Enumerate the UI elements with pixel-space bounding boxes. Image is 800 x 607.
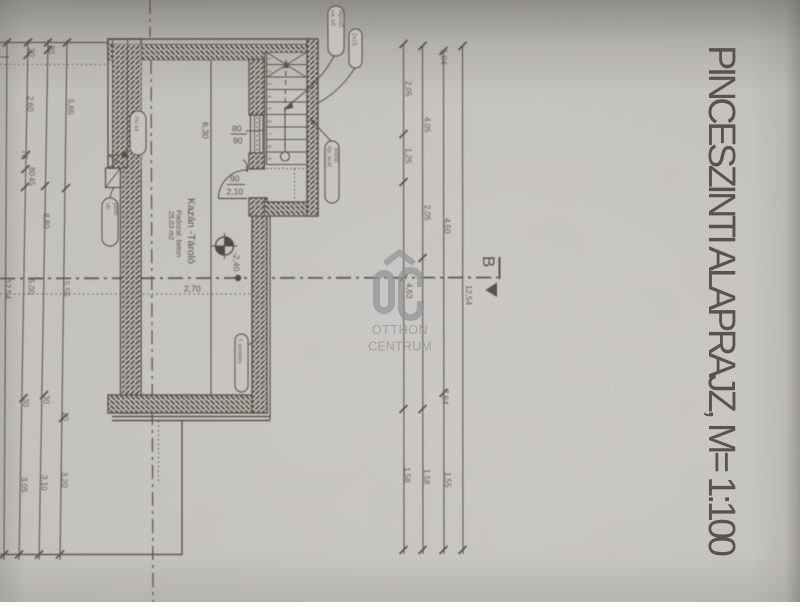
svg-text:2x15: 2x15 [351,33,357,47]
svg-text:CENTRUM: CENTRUM [368,340,432,354]
svg-text:8,80: 8,80 [42,213,51,229]
svg-text:1,58: 1,58 [403,467,412,483]
svg-text:20: 20 [61,412,70,421]
svg-text:PH 94: PH 94 [133,116,139,131]
svg-text:3: 3 [266,82,272,85]
svg-text:5,55: 5,55 [62,281,71,297]
svg-text:7,64: 7,64 [441,389,450,405]
svg-text:90: 90 [230,174,240,184]
svg-text:1,58: 1,58 [422,469,431,485]
svg-text:f. emelés: f. emelés [236,339,242,363]
svg-text:30: 30 [42,395,51,404]
svg-text:2,10: 2,10 [227,187,244,197]
svg-text:3,20: 3,20 [60,472,69,488]
svg-text:5,65: 5,65 [66,99,75,115]
svg-text:va. kő: va. kő [329,10,335,27]
svg-text:70: 70 [20,150,29,159]
svg-text:3,05: 3,05 [20,477,29,493]
svg-text:30: 30 [21,398,30,407]
svg-text:20: 20 [47,45,56,54]
svg-text:12,54: 12,54 [3,279,12,300]
svg-text:3,10: 3,10 [40,475,49,491]
svg-text:4,05: 4,05 [423,117,432,133]
svg-text:Padozat: beton: Padozat: beton [175,210,182,257]
svg-text:80: 80 [27,167,36,176]
svg-text:Kazán -Tároló: Kazán -Tároló [185,198,197,264]
svg-text:2,05: 2,05 [404,81,413,97]
svg-text:5: 5 [266,107,272,110]
svg-text:4,50: 4,50 [443,218,452,234]
svg-text:1,04: 1,04 [439,49,448,65]
svg-text:25,03 m2: 25,03 m2 [167,211,174,240]
svg-text:5,00: 5,00 [27,279,36,295]
svg-text:lépcső: lépcső [337,10,343,28]
svg-text:8: 8 [266,145,272,148]
svg-text:2,60: 2,60 [26,96,35,112]
svg-text:-2,40: -2,40 [232,252,242,272]
svg-text:PINCESZINTI ALAPRAJZ, M= 1:10: PINCESZINTI ALAPRAJZ, M= 1:100 [700,45,742,556]
svg-text:1: 1 [266,57,272,60]
svg-text:2,70: 2,70 [184,284,201,294]
svg-text:korlát: korlát [333,148,339,163]
svg-text:12,54: 12,54 [464,285,473,306]
svg-text:9: 9 [266,157,272,160]
svg-text:6,30: 6,30 [201,122,211,139]
svg-text:1,25: 1,25 [404,148,413,164]
svg-text:ép. acél: ép. acél [326,146,332,167]
svg-text:2: 2 [266,70,272,73]
svg-text:45: 45 [27,177,36,186]
svg-text:pillér: pillér [112,203,118,216]
svg-text:7: 7 [266,132,272,135]
svg-text:4: 4 [266,95,272,98]
svg-text:B: B [479,256,498,267]
svg-text:20: 20 [27,48,36,57]
svg-text:80: 80 [232,124,242,134]
svg-text:6: 6 [266,120,272,123]
svg-text:OTTHON: OTTHON [372,323,428,337]
svg-text:vb.: vb. [104,203,110,211]
svg-text:4,63: 4,63 [405,283,414,299]
svg-text:1,55: 1,55 [443,472,452,488]
svg-text:90: 90 [233,136,243,146]
svg-text:2,05: 2,05 [423,205,432,221]
